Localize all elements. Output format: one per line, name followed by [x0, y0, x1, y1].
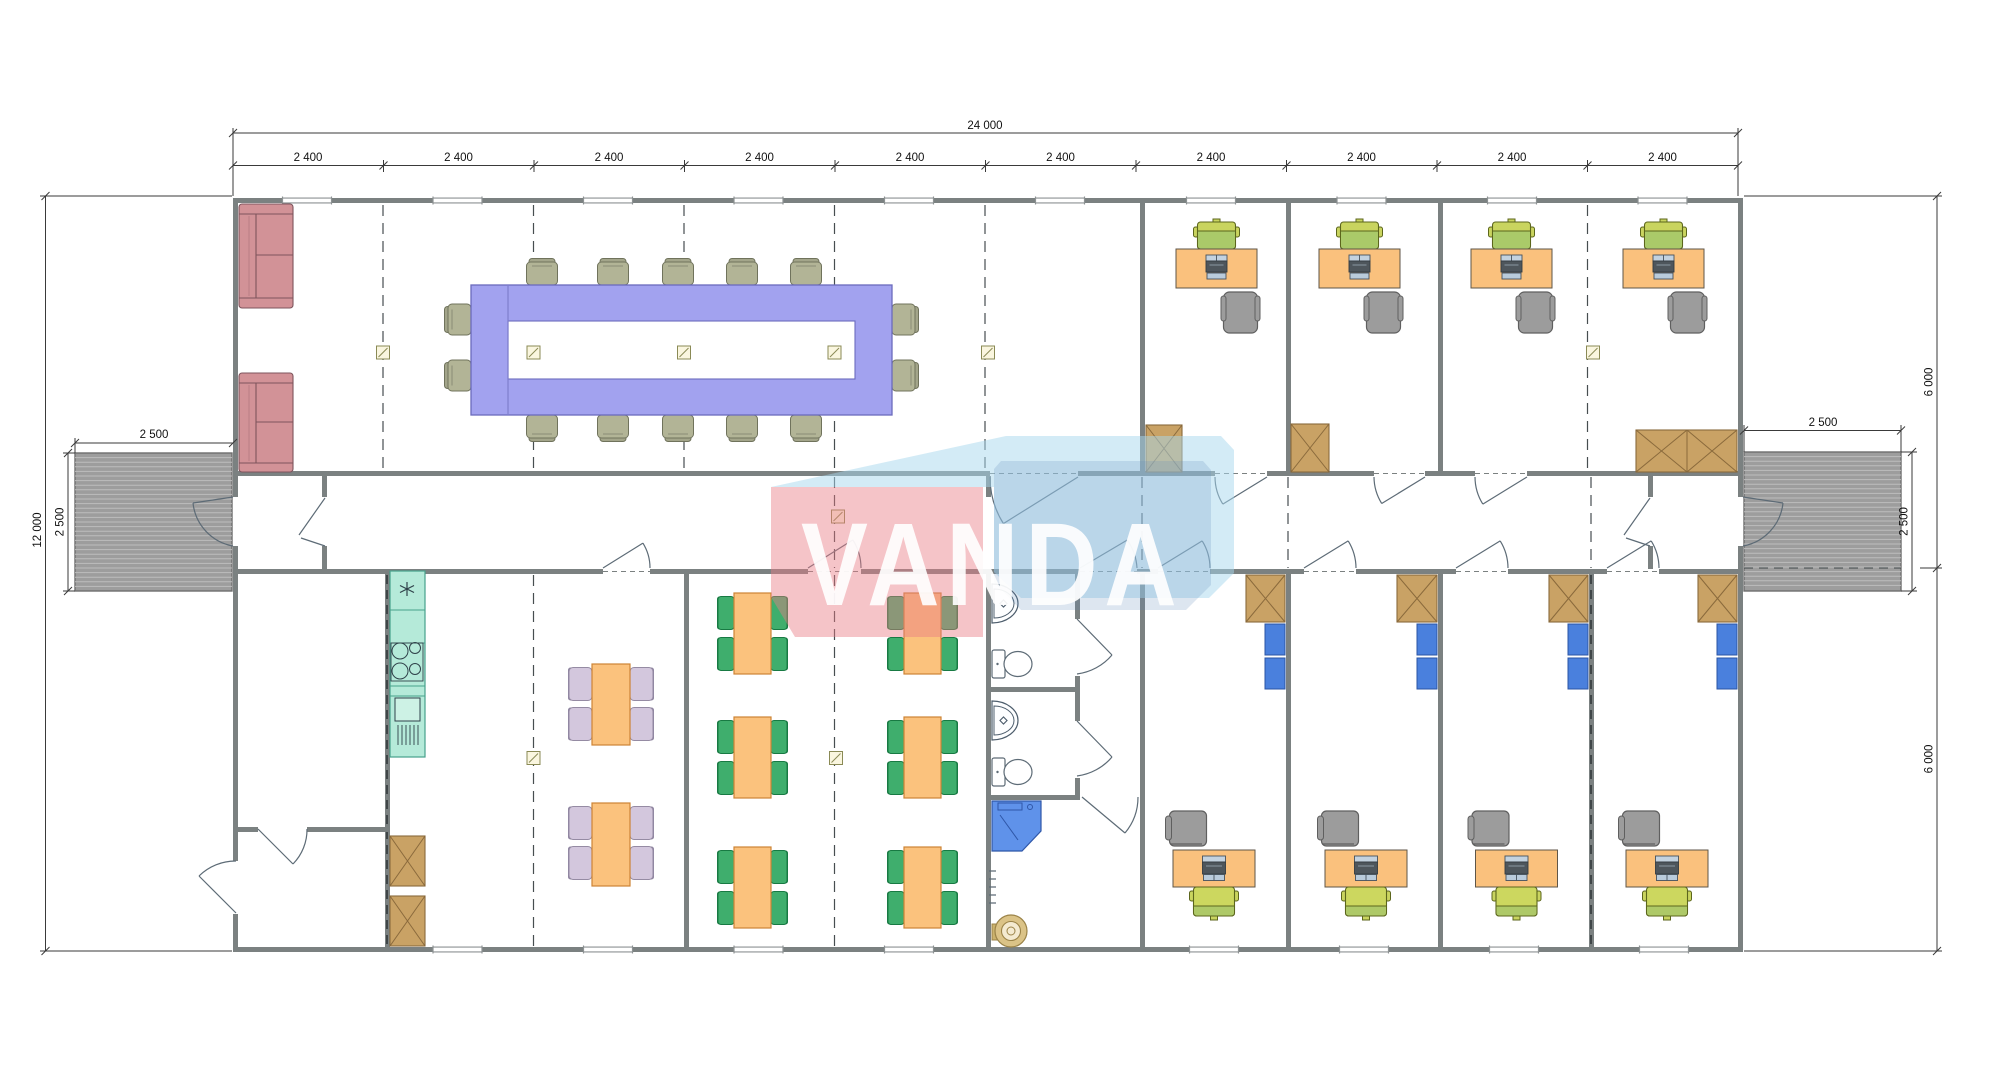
svg-text:2 400: 2 400: [745, 152, 774, 164]
svg-text:2 400: 2 400: [1197, 152, 1226, 164]
svg-text:2 400: 2 400: [595, 152, 624, 164]
svg-text:2 500: 2 500: [1809, 417, 1838, 429]
svg-text:2 500: 2 500: [140, 429, 169, 441]
svg-text:2 400: 2 400: [1648, 152, 1677, 164]
svg-text:2 400: 2 400: [444, 152, 473, 164]
svg-text:2 400: 2 400: [294, 152, 323, 164]
svg-text:6 000: 6 000: [1924, 745, 1936, 774]
svg-text:12 000: 12 000: [32, 512, 44, 547]
svg-text:24 000: 24 000: [967, 120, 1002, 132]
svg-text:2 400: 2 400: [1347, 152, 1376, 164]
svg-text:VANDA: VANDA: [801, 499, 1184, 630]
svg-text:6 000: 6 000: [1924, 368, 1936, 397]
svg-text:2 500: 2 500: [1899, 507, 1911, 536]
svg-text:2 400: 2 400: [896, 152, 925, 164]
svg-text:2 400: 2 400: [1046, 152, 1075, 164]
svg-text:2 400: 2 400: [1498, 152, 1527, 164]
svg-text:2 500: 2 500: [55, 508, 67, 537]
